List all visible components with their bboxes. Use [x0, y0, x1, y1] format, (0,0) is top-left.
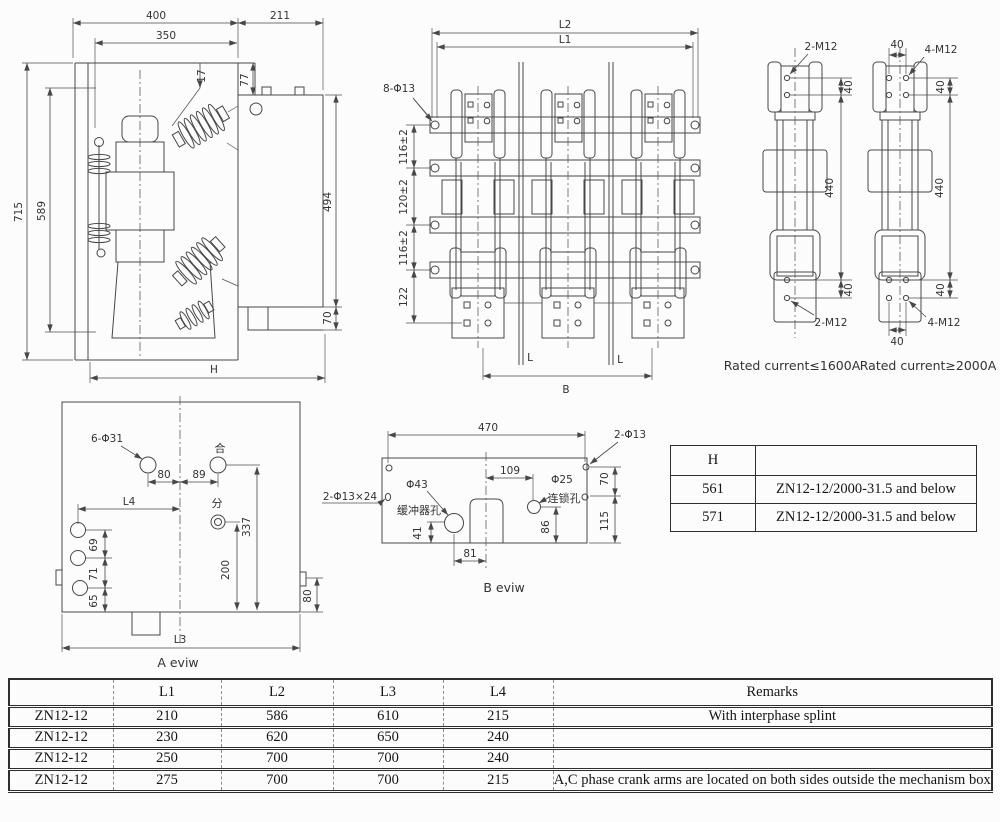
label-4-M12-top: 4-M12 — [925, 44, 958, 56]
rod-label-L-left: L — [527, 352, 533, 364]
table-row: 561 ZN12-12/2000-31.5 and below — [671, 476, 977, 504]
dim-40: 40 — [935, 80, 947, 93]
col-header — [9, 679, 113, 706]
dim-109: 109 — [500, 465, 520, 477]
dim-40: 40 — [843, 80, 855, 93]
dim-40-top: 40 — [890, 39, 903, 51]
col-header: L2 — [221, 679, 333, 706]
front-view-drawing — [430, 62, 700, 365]
dim-L3: L3 — [174, 634, 187, 646]
dim-40: 40 — [843, 283, 855, 296]
cell: ZN12-12 — [9, 748, 113, 769]
cell: ZN12-12/2000-31.5 and below — [756, 476, 977, 504]
dim-337: 337 — [241, 517, 253, 537]
dim-116a: 116±2 — [398, 129, 410, 165]
dim-115: 115 — [599, 511, 611, 531]
cell: 610 — [333, 706, 443, 727]
dim-17: 17 — [196, 69, 208, 82]
cell: 561 — [671, 476, 756, 504]
rod-label-L-right: L — [617, 354, 623, 366]
cell: 700 — [333, 748, 443, 769]
caption-b-view: B eviw — [483, 580, 524, 595]
dim-440: 440 — [824, 178, 836, 198]
dim-715: 715 — [13, 202, 25, 222]
dim-80: 80 — [157, 469, 170, 481]
cell: 571 — [671, 504, 756, 532]
dim-400: 400 — [146, 10, 166, 22]
dim-470: 470 — [478, 422, 498, 434]
dim-350: 350 — [156, 30, 176, 42]
cell: 650 — [333, 727, 443, 748]
cell: 250 — [113, 748, 221, 769]
dim-494: 494 — [322, 192, 334, 212]
dim-69: 69 — [88, 538, 100, 551]
cell: ZN12-12 — [9, 727, 113, 748]
pole-1600-drawing: 2-M12 40 440 40 2-M12 Rated current≤1600… — [724, 41, 861, 373]
cell: 240 — [443, 748, 553, 769]
dim-80-right: 80 — [302, 589, 314, 602]
table-row: H — [671, 446, 977, 476]
dim-116b: 116±2 — [398, 230, 410, 266]
dim-70: 70 — [322, 311, 334, 324]
engineering-drawing-page: 400 211 350 17 77 715 589 494 70 H — [0, 0, 1000, 822]
label-2-M12-bottom: 2-M12 — [815, 317, 848, 329]
dim-122: 122 — [398, 287, 410, 307]
dim-86: 86 — [540, 520, 552, 534]
col-header: H — [671, 446, 756, 476]
col-header: Remarks — [553, 679, 992, 706]
caption-a-view: A eviw — [157, 655, 198, 670]
cell: 210 — [113, 706, 221, 727]
dim-70: 70 — [599, 472, 611, 485]
label-phi25: Φ25 — [551, 474, 573, 486]
label-2-M12-top: 2-M12 — [805, 41, 838, 53]
b-view-dimensions: 470 2-Φ13 2-Φ13×24 Φ43 缓冲器孔 109 Φ25 连锁孔 … — [322, 422, 646, 595]
symbol-open: 分 — [212, 497, 223, 510]
caption-rated-1600: Rated current≤1600A — [724, 358, 861, 373]
dim-41: 41 — [412, 526, 424, 539]
dim-40: 40 — [935, 283, 947, 296]
side-view-dimensions: 400 211 350 17 77 715 589 494 70 H — [13, 10, 342, 383]
dim-L2: L2 — [559, 19, 572, 31]
table-row: ZN12-12 230 620 650 240 — [9, 727, 992, 748]
symbol-close: 合 — [215, 441, 226, 455]
cell: 620 — [221, 727, 333, 748]
dim-81: 81 — [463, 548, 476, 560]
front-view-dimensions: L2 L1 8-Φ13 116±2 120±2 116±2 122 L L B — [383, 19, 698, 396]
cell: 275 — [113, 769, 221, 791]
dim-440: 440 — [934, 178, 946, 198]
dim-71: 71 — [88, 567, 100, 580]
cell: With interphase splint — [553, 706, 992, 727]
dim-120: 120±2 — [398, 179, 410, 215]
cell: ZN12-12 — [9, 706, 113, 727]
h-table: H 561 ZN12-12/2000-31.5 and below 571 ZN… — [670, 445, 977, 532]
cell — [553, 727, 992, 748]
side-view-drawing — [75, 63, 323, 360]
dim-89: 89 — [192, 469, 205, 481]
cell: 586 — [221, 706, 333, 727]
a-view-dimensions: 6-Φ31 80 89 合 分 L4 69 71 65 337 200 80 L… — [62, 433, 323, 670]
dim-211: 211 — [270, 10, 290, 22]
dim-B: B — [562, 384, 569, 396]
label-2xphi13: 2-Φ13 — [614, 429, 646, 441]
cell — [553, 748, 992, 769]
label-2xphi13x24: 2-Φ13×24 — [323, 491, 378, 503]
cell: ZN12-12/2000-31.5 and below — [756, 504, 977, 532]
dim-200: 200 — [220, 560, 232, 580]
table-row: 571 ZN12-12/2000-31.5 and below — [671, 504, 977, 532]
cell: 700 — [333, 769, 443, 791]
dim-L1: L1 — [559, 34, 572, 46]
dim-8xphi13: 8-Φ13 — [383, 83, 415, 95]
table-row: ZN12-12 250 700 700 240 — [9, 748, 992, 769]
dim-77: 77 — [239, 73, 251, 86]
col-header: L4 — [443, 679, 553, 706]
label-buffer-hole: 缓冲器孔 — [397, 503, 441, 517]
col-header: L1 — [113, 679, 221, 706]
dim-589: 589 — [36, 201, 48, 221]
dim-65: 65 — [88, 594, 100, 607]
dim-40-bottom: 40 — [890, 336, 903, 348]
cell: 215 — [443, 706, 553, 727]
label-6xphi31: 6-Φ31 — [91, 433, 123, 445]
caption-rated-2000: Rated current≥2000A — [860, 358, 997, 373]
label-interlock-hole: 连锁孔 — [548, 491, 581, 505]
dimension-table: L1 L2 L3 L4 Remarks ZN12-12 210 586 610 … — [8, 678, 993, 793]
dim-L4: L4 — [123, 496, 136, 508]
cell: 700 — [221, 769, 333, 791]
col-header: L3 — [333, 679, 443, 706]
cell: A,C phase crank arms are located on both… — [553, 769, 992, 791]
cell: 240 — [443, 727, 553, 748]
table-row: ZN12-12 210 586 610 215 With interphase … — [9, 706, 992, 727]
dim-H: H — [210, 364, 218, 376]
cell: ZN12-12 — [9, 769, 113, 791]
cell: 215 — [443, 769, 553, 791]
label-phi43: Φ43 — [406, 479, 428, 491]
table-header-row: L1 L2 L3 L4 Remarks — [9, 679, 992, 706]
table-row: ZN12-12 275 700 700 215 A,C phase crank … — [9, 769, 992, 791]
label-4-M12-bottom: 4-M12 — [928, 317, 961, 329]
cell: 230 — [113, 727, 221, 748]
cell: 700 — [221, 748, 333, 769]
col-header — [756, 446, 977, 476]
pole-2000-drawing: 40 4-M12 40 440 40 4-M12 40 Rated curren… — [860, 39, 997, 373]
